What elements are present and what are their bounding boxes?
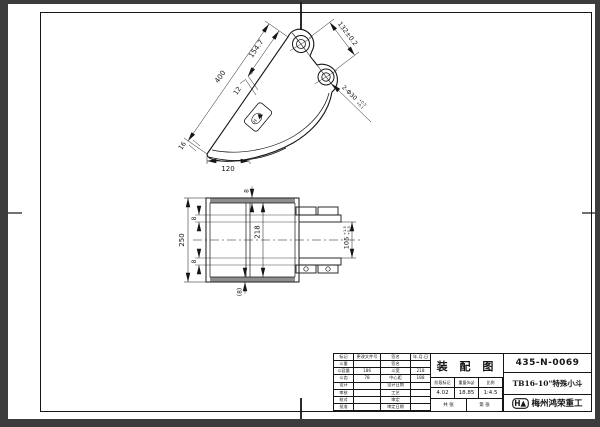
svg-text:132±0.2: 132±0.2 xyxy=(336,20,359,47)
tb-cell: 设计日期 xyxy=(381,383,411,390)
side-view: H 400 154.7 12 xyxy=(177,19,371,173)
company-logo-icon: H xyxy=(512,398,529,409)
tb-cell: 斗容量 xyxy=(334,368,354,375)
sheet-count-row: 共 张 第 张 xyxy=(431,399,503,411)
bucket-outline xyxy=(207,29,337,161)
title-block-revision-table: 标记 更改文件号 签名 年.月.日 斗重 签名 斗容量 186 斗宽 218 斗… xyxy=(334,354,431,411)
plate-logo-letter: H xyxy=(252,118,259,125)
tb-cell xyxy=(411,361,431,368)
title-block: 标记 更改文件号 签名 年.月.日 斗重 签名 斗容量 186 斗宽 218 斗… xyxy=(333,353,592,412)
tb-cell: 年.月.日 xyxy=(411,354,431,361)
tb-cell: 188 xyxy=(411,375,431,382)
tb-cell: 审定日期 xyxy=(381,404,411,411)
info-headers: 阶段标记 重量(kg) 比例 xyxy=(431,378,503,388)
dim-12: 12 xyxy=(232,73,256,97)
tb-cell: 工艺 xyxy=(381,390,411,397)
tb-cell: 斗齿 xyxy=(334,375,354,382)
bucket-belly-line xyxy=(209,148,286,160)
svg-text:400: 400 xyxy=(213,69,227,85)
stage-label: 阶段标记 xyxy=(431,378,455,388)
sheet-number: 第 张 xyxy=(467,399,503,411)
svg-text:250: 250 xyxy=(178,233,186,246)
dim-holes-label: 2-Φ30 +0.5 +0.1 xyxy=(332,83,371,122)
tb-cell: 签名 xyxy=(381,361,411,368)
drawing-sheet: H 400 154.7 12 xyxy=(0,0,600,427)
tb-cell xyxy=(354,390,381,397)
tb-cell xyxy=(354,404,381,411)
svg-text:16: 16 xyxy=(177,140,188,151)
tb-cell: 186 xyxy=(354,368,381,375)
tb-cell: 校对 xyxy=(334,397,354,404)
tb-cell: 斗宽 xyxy=(381,368,411,375)
svg-text:8: 8 xyxy=(191,259,198,263)
title-block-center: 装 配 图 阶段标记 重量(kg) 比例 4.02 18.85 1:4.5 共 … xyxy=(431,354,504,411)
dim-154-7: 154.7 xyxy=(247,31,279,90)
dim-16: 16 xyxy=(177,140,200,152)
tb-cell: 签名 xyxy=(381,354,411,361)
tb-cell: 中心距 xyxy=(381,375,411,382)
svg-text:120: 120 xyxy=(221,165,234,173)
tb-cell xyxy=(411,383,431,390)
info-values: 4.02 18.85 1:4.5 xyxy=(431,388,503,400)
tb-cell: 更改文件号 xyxy=(354,354,381,361)
net-weight-value: 4.02 xyxy=(431,388,455,400)
tb-cell xyxy=(354,397,381,404)
drawing-number: 435-N-0069 xyxy=(504,354,591,373)
part-name: TB16-10"特殊小斗 xyxy=(504,373,591,395)
drawing-type-title: 装 配 图 xyxy=(431,354,503,378)
tb-cell: 斗重 xyxy=(334,361,354,368)
bucket-inner-shell xyxy=(212,93,329,152)
weight-label: 重量(kg) xyxy=(455,378,479,388)
bucket-logo-plate: H xyxy=(243,102,273,133)
front-view: 250 8 8 8 xyxy=(178,186,362,296)
title-block-right: 435-N-0069 TB16-10"特殊小斗 H 梅州鸿荣重工 xyxy=(504,354,591,411)
tb-cell: 78 xyxy=(354,375,381,382)
tb-cell: 标记 xyxy=(334,354,354,361)
tb-cell xyxy=(354,383,381,390)
scale-label: 比例 xyxy=(479,378,503,388)
tb-cell xyxy=(411,404,431,411)
tb-cell xyxy=(411,390,431,397)
tb-cell: 218 xyxy=(411,368,431,375)
scale-value: 1:4.5 xyxy=(479,388,503,400)
gross-weight-value: 18.85 xyxy=(455,388,479,400)
tb-cell: 批准 xyxy=(334,404,354,411)
dim-8-top: 8 xyxy=(191,207,297,230)
svg-text:+0.5: +0.5 xyxy=(347,226,351,235)
company-row: H 梅州鸿荣重工 xyxy=(504,395,591,411)
dim-8-bottom: 8 xyxy=(191,250,297,273)
company-name: 梅州鸿荣重工 xyxy=(531,397,582,409)
svg-text:(8): (8) xyxy=(237,288,244,297)
svg-text:154.7: 154.7 xyxy=(247,38,265,59)
svg-text:2-Φ30: 2-Φ30 xyxy=(340,84,358,102)
svg-text:8: 8 xyxy=(244,189,251,193)
svg-text:218: 218 xyxy=(254,225,262,238)
svg-text:12: 12 xyxy=(232,85,243,96)
svg-text:H: H xyxy=(515,399,521,408)
dim-120: 120 xyxy=(207,156,250,173)
svg-text:105: 105 xyxy=(343,237,351,249)
hole-axis-centerline xyxy=(292,33,338,92)
pin-hole-top xyxy=(290,33,312,55)
tb-cell: 设计 xyxy=(334,383,354,390)
tb-cell: 审定 xyxy=(381,397,411,404)
sheet-total: 共 张 xyxy=(431,399,467,411)
svg-text:8: 8 xyxy=(191,216,198,220)
tb-cell: 审核 xyxy=(334,390,354,397)
tb-cell xyxy=(411,397,431,404)
dim-132: 132±0.2 xyxy=(309,19,359,71)
tb-cell xyxy=(354,361,381,368)
